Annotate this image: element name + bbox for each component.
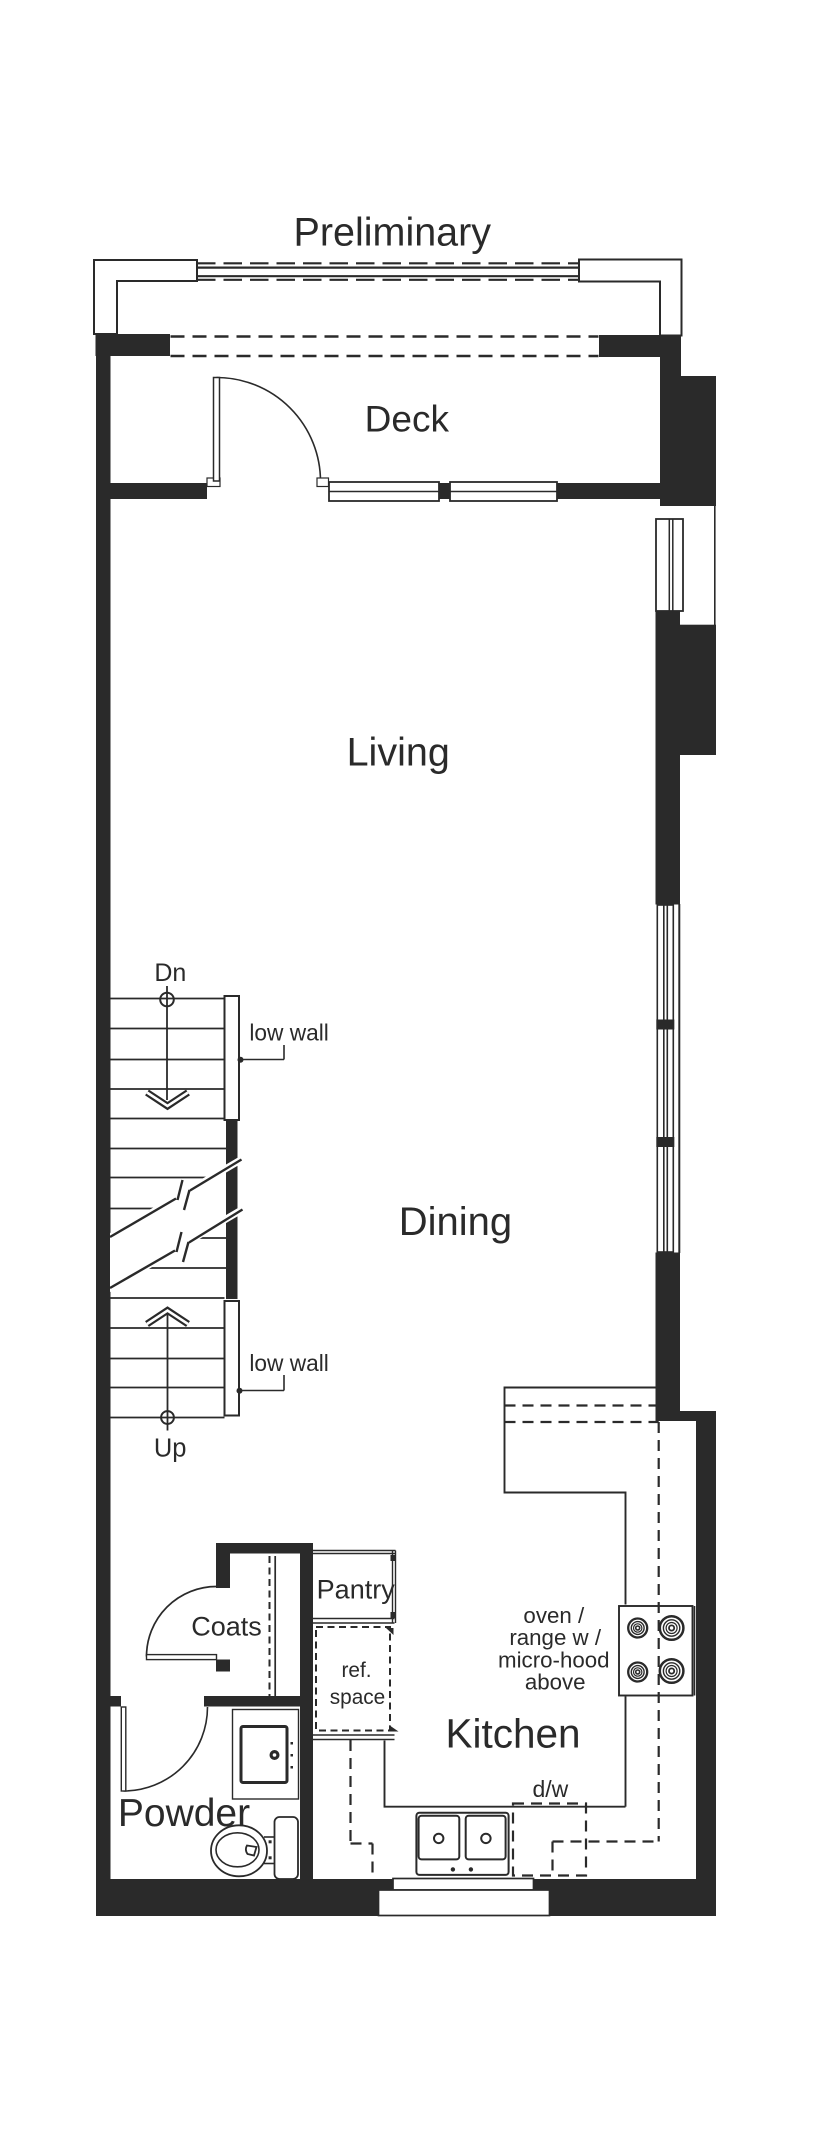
svg-text:Up: Up	[154, 1434, 187, 1462]
svg-text:range w /: range w /	[509, 1625, 602, 1650]
svg-text:space: space	[330, 1686, 386, 1709]
svg-text:Kitchen: Kitchen	[445, 1711, 580, 1757]
svg-text:Pantry: Pantry	[317, 1575, 396, 1605]
svg-text:Deck: Deck	[365, 398, 450, 439]
svg-text:Living: Living	[347, 731, 450, 775]
svg-text:Dining: Dining	[399, 1200, 512, 1244]
svg-text:oven /: oven /	[523, 1603, 585, 1628]
svg-text:low wall: low wall	[249, 1350, 328, 1376]
svg-text:ref.: ref.	[341, 1659, 371, 1682]
svg-text:Coats: Coats	[191, 1612, 262, 1642]
svg-text:d/w: d/w	[533, 1776, 569, 1802]
svg-text:above: above	[525, 1669, 586, 1694]
svg-text:Dn: Dn	[154, 959, 186, 987]
svg-text:low wall: low wall	[249, 1020, 328, 1046]
svg-text:Preliminary: Preliminary	[294, 211, 492, 255]
